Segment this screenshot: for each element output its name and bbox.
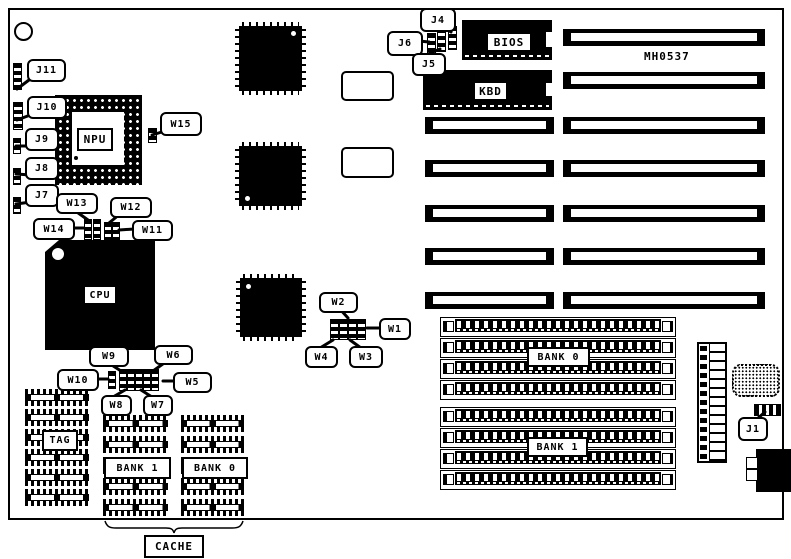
callout-j9-text: J9: [35, 134, 49, 145]
header-j7: [13, 197, 21, 214]
simm-socket-bank1: [440, 470, 676, 490]
header-j9: [13, 138, 21, 154]
simm-socket-bank0: [440, 380, 676, 400]
header-w11-w12-b: [112, 222, 120, 240]
isa-slot-short-3: [425, 205, 554, 222]
callout-w4: W4: [305, 346, 338, 368]
qfp-chip-2: [239, 146, 302, 206]
header-w10: [108, 371, 116, 389]
isa-slot-long-1: [563, 29, 765, 46]
header-j8: [13, 168, 21, 185]
header-w5: [151, 369, 159, 391]
stippled-component: [732, 364, 780, 397]
simm-bank1-text: BANK 1: [536, 442, 578, 453]
callout-w12-text: W12: [120, 202, 141, 213]
bios-chip-notch: [546, 32, 552, 47]
kbd-label-text: KBD: [479, 85, 502, 98]
cache-bank0-socket: [181, 415, 244, 432]
cache-bank0-label: BANK 0: [182, 457, 248, 479]
callout-j10-text: J10: [36, 102, 57, 113]
callout-w3: W3: [349, 346, 383, 368]
callout-j1-text: J1: [746, 424, 760, 435]
cache-bank0-socket: [181, 499, 244, 516]
bios-label: BIOS: [486, 32, 532, 52]
crystal-2: [341, 147, 394, 178]
callout-j5: J5: [412, 53, 446, 76]
callout-w12: W12: [110, 197, 152, 218]
power-connector: [697, 342, 727, 463]
callout-j5-text: J5: [422, 59, 436, 70]
callout-j10: J10: [27, 96, 67, 119]
callout-j11: J11: [27, 59, 66, 82]
cache-bank1-label: BANK 1: [104, 457, 171, 479]
tag-socket: [25, 489, 89, 506]
cache-label-text: CACHE: [155, 540, 193, 553]
header-w4: [330, 319, 339, 340]
header-j6: [427, 33, 436, 55]
header-w13-w14-b: [93, 219, 101, 240]
isa-slot-short-4: [425, 248, 554, 265]
isa-slot-long-6: [563, 248, 765, 265]
callout-w6-text: W6: [166, 350, 180, 361]
cache-bank0-text: BANK 0: [194, 463, 236, 474]
callout-w15-text: W15: [170, 119, 191, 130]
simm-socket-bank1: [440, 407, 676, 427]
callout-w9: W9: [89, 346, 129, 367]
tag-socket: [25, 449, 89, 466]
kbd-label: KBD: [473, 81, 508, 101]
callout-j7-text: J7: [35, 190, 49, 201]
simm-bar: [455, 409, 661, 422]
callout-w2-text: W2: [331, 297, 345, 308]
callout-w2: W2: [319, 292, 358, 313]
qfp2-pin1-dot: [245, 196, 250, 201]
callout-w14: W14: [33, 218, 75, 240]
npu-label-text: NPU: [84, 133, 107, 146]
bios-chip-dash: [465, 55, 549, 57]
simm-bank1-label: BANK 1: [527, 437, 588, 457]
callout-w8-text: W8: [109, 400, 123, 411]
cache-label: CACHE: [144, 535, 204, 558]
keyboard-din-connector: [756, 449, 791, 492]
callout-w11-text: W11: [142, 225, 163, 236]
callout-w7: W7: [143, 395, 173, 416]
motherboard-diagram: NPU CPU BIOS KBD: [0, 0, 791, 559]
qfp1-pin1-dot: [291, 31, 296, 36]
power-connector-sockets: [709, 344, 725, 461]
isa-slot-short-2: [425, 160, 554, 177]
callout-j8-text: J8: [35, 163, 49, 174]
cpu-pin1-dot: [52, 248, 64, 260]
callout-w6: W6: [154, 345, 193, 365]
isa-slot-long-7: [563, 292, 765, 309]
header-w1: [357, 319, 366, 340]
simm-bar: [455, 319, 661, 332]
header-w9: [119, 369, 127, 391]
isa-slot-long-5: [563, 205, 765, 222]
header-w11-w12-a: [104, 222, 112, 240]
simm-bar: [455, 382, 661, 395]
isa-slot-short-5: [425, 292, 554, 309]
cpu-label: CPU: [84, 286, 116, 304]
power-connector-pins: [700, 346, 707, 459]
callout-j8: J8: [25, 157, 59, 180]
keyboard-connector-tab: [746, 469, 758, 481]
callout-w11: W11: [132, 220, 173, 241]
cache-bank1-socket: [103, 436, 168, 453]
callout-w5-text: W5: [185, 377, 199, 388]
callout-w14-text: W14: [43, 224, 64, 235]
header-j1: [754, 404, 781, 416]
simm-bar: [455, 472, 661, 485]
callout-w10: W10: [57, 369, 99, 391]
simm-socket-bank0: [440, 317, 676, 337]
header-w2: [339, 319, 348, 340]
qfp-chip-3: [240, 278, 302, 337]
callout-j4: J4: [420, 8, 456, 32]
header-w3: [348, 319, 357, 340]
callout-w13-text: W13: [66, 198, 87, 209]
simm-bank0-text: BANK 0: [537, 352, 579, 363]
header-j10: [13, 102, 23, 130]
cpu-chip: CPU: [45, 240, 155, 350]
header-j11: [13, 63, 22, 90]
tag-socket: [25, 469, 89, 486]
mounting-hole: [14, 22, 33, 41]
callout-j9: J9: [25, 128, 59, 151]
qfp-chip-1: [239, 26, 302, 91]
callout-j1: J1: [738, 417, 768, 441]
isa-slot-short-1: [425, 117, 554, 134]
header-w13-w14-a: [84, 219, 92, 240]
cache-bank1-socket: [103, 478, 168, 495]
callout-j7: J7: [25, 184, 59, 207]
callout-w1-text: W1: [388, 324, 402, 335]
callout-w10-text: W10: [67, 375, 88, 386]
header-w8: [127, 369, 135, 391]
cache-bank0-socket: [181, 436, 244, 453]
tag-label: TAG: [42, 430, 78, 451]
callout-w9-text: W9: [102, 351, 116, 362]
tag-socket: [25, 409, 89, 426]
callout-w3-text: W3: [359, 352, 373, 363]
header-w15: [148, 128, 157, 143]
npu-label: NPU: [77, 128, 113, 151]
isa-slot-long-4: [563, 160, 765, 177]
qfp3-pin1-dot: [246, 284, 251, 289]
callout-w8: W8: [101, 395, 132, 416]
tag-socket: [25, 389, 89, 406]
isa-slot-long-2: [563, 72, 765, 89]
crystal-1: [341, 71, 394, 101]
cpu-label-text: CPU: [89, 290, 110, 301]
isa-slot-long-3: [563, 117, 765, 134]
keyboard-connector-tab: [746, 457, 758, 469]
cache-bank1-socket: [103, 499, 168, 516]
callout-w5: W5: [173, 372, 212, 393]
header-w6: [143, 369, 151, 391]
callout-w4-text: W4: [314, 352, 328, 363]
callout-w13: W13: [56, 193, 98, 214]
simm-bank0-label: BANK 0: [527, 347, 590, 367]
header-w7: [135, 369, 143, 391]
callout-w15: W15: [160, 112, 202, 136]
kbd-chip-notch: [546, 83, 552, 96]
callout-j11-text: J11: [36, 65, 57, 76]
kbd-chip-dash: [426, 105, 549, 107]
tag-label-text: TAG: [49, 435, 70, 446]
callout-w7-text: W7: [151, 400, 165, 411]
callout-w1: W1: [379, 318, 411, 340]
npu-pin1-dot: [74, 156, 78, 160]
cache-bank1-socket: [103, 415, 168, 432]
callout-j6-text: J6: [398, 38, 412, 49]
cache-bank0-socket: [181, 478, 244, 495]
callout-j4-text: J4: [431, 15, 445, 26]
board-part-number: MH0537: [644, 50, 690, 63]
bios-label-text: BIOS: [494, 36, 525, 49]
cache-bank1-text: BANK 1: [116, 463, 158, 474]
